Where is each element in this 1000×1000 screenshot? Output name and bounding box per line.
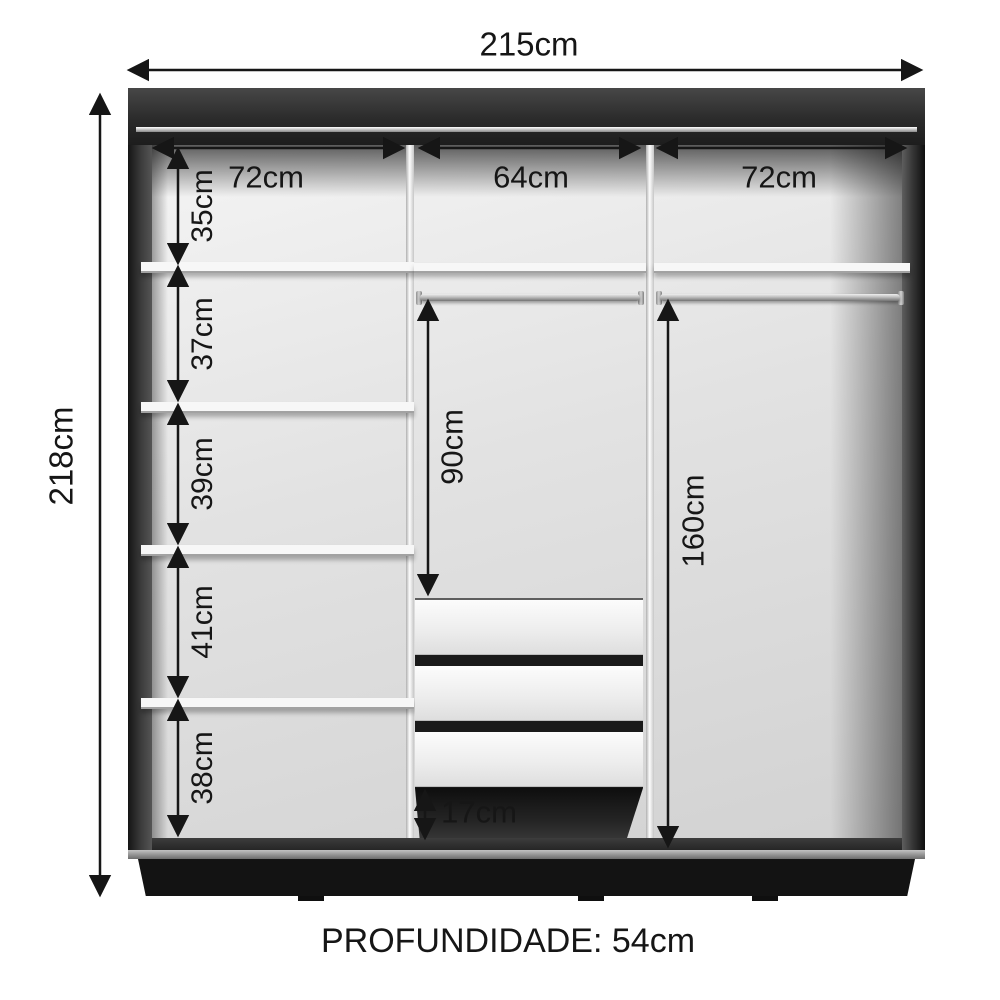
base-front-edge — [128, 850, 925, 859]
drawer-1 — [415, 600, 643, 655]
overall-width-label: 215cm — [479, 28, 578, 61]
left-section-width-label: 72cm — [228, 162, 304, 193]
overall-height-label: 218cm — [45, 406, 78, 505]
wardrobe-plinth — [138, 859, 915, 896]
middle-hanging-rod — [420, 294, 640, 301]
wardrobe-dimension-diagram: 215cm 218cm 72cm 64cm 72cm 35cm 37cm 39c… — [0, 0, 1000, 1000]
drawer-3 — [415, 732, 643, 787]
left-shelf-3 — [141, 545, 414, 556]
right-top-shelf — [654, 263, 910, 273]
interior-left-shadow — [152, 145, 168, 838]
shelf-gap-label-5: 38cm — [188, 731, 218, 804]
shelf-gap-label-1: 35cm — [188, 169, 218, 242]
shelf-gap-label-3: 39cm — [188, 437, 218, 510]
vertical-divider-right — [646, 145, 654, 838]
left-shelf-4 — [141, 698, 414, 709]
middle-top-shelf — [414, 263, 646, 273]
right-hanging-rod — [660, 294, 900, 301]
rod-to-base-label: 160cm — [678, 474, 709, 567]
wardrobe-foot — [752, 896, 778, 901]
left-shelf-2 — [141, 402, 414, 413]
drawer-gap — [415, 721, 643, 732]
wardrobe-left-side-panel — [128, 145, 152, 850]
left-shelf-1 — [141, 262, 414, 273]
sliding-door-rail — [136, 127, 917, 132]
drawer-gap — [415, 655, 643, 666]
drawer-2 — [415, 666, 643, 721]
below-drawers-label: 17cm — [441, 797, 517, 828]
rod-to-drawers-label: 90cm — [437, 409, 468, 485]
shelf-gap-label-4: 41cm — [188, 585, 218, 658]
wardrobe-top-panel — [128, 88, 925, 145]
vertical-divider-left — [406, 145, 414, 838]
wardrobe-foot — [578, 896, 604, 901]
drawer-unit — [415, 598, 643, 788]
middle-section-width-label: 64cm — [493, 162, 569, 193]
depth-label: PROFUNDIDADE: 54cm — [321, 924, 695, 958]
wardrobe-body — [128, 88, 925, 859]
wardrobe-foot — [298, 896, 324, 901]
right-section-width-label: 72cm — [741, 162, 817, 193]
wardrobe-bottom-panel — [152, 838, 902, 850]
shelf-gap-label-2: 37cm — [188, 297, 218, 370]
wardrobe-right-side-panel — [902, 145, 925, 850]
